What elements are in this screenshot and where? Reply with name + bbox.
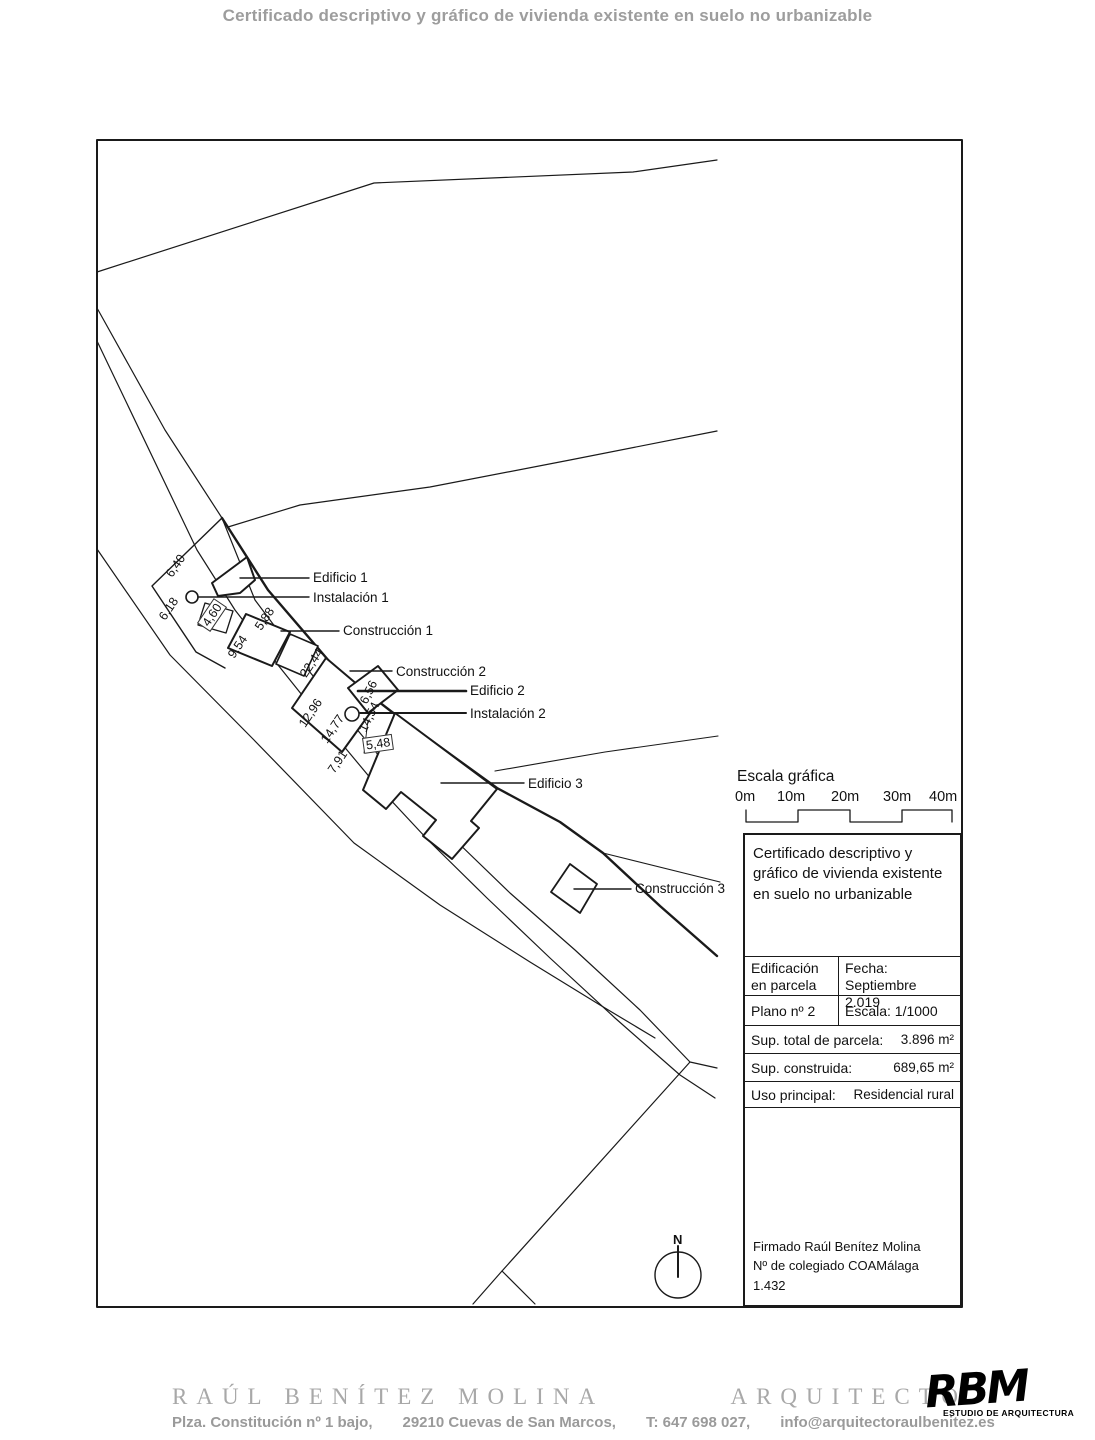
footer-address: Plza. Constitución nº 1 bajo,	[172, 1414, 373, 1431]
scale-tick-40: 40m	[929, 789, 957, 805]
north-label: N	[673, 1232, 682, 1247]
footer-phone: T: 647 698 027,	[646, 1414, 750, 1431]
field-line	[473, 1062, 690, 1304]
scale-tick-0: 0m	[735, 789, 755, 805]
title-block-title: Certificado descriptivo y gráfico de viv…	[745, 835, 960, 957]
uso-principal-row: Uso principal: Residencial rural	[745, 1082, 960, 1108]
label-instalacion-2: Instalación 2	[470, 706, 546, 721]
scale-bar-title: Escala gráfica	[737, 768, 834, 786]
label-edificio-2: Edificio 2	[470, 683, 525, 698]
plan-sheet: Certificado descriptivo y gráfico de viv…	[0, 0, 1095, 1440]
field-line	[603, 853, 720, 882]
field-line	[495, 736, 718, 771]
label-instalacion-1: Instalación 1	[313, 590, 389, 605]
sup-construida-label: Sup. construida:	[751, 1060, 852, 1076]
sup-construida-row: Sup. construida: 689,65 m²	[745, 1054, 960, 1082]
signature-block: Firmado Raúl Benítez Molina Nº de colegi…	[745, 1237, 960, 1306]
edificacion-en-parcela-cell: Edificación en parcela	[745, 957, 839, 995]
scale-tick-30: 30m	[883, 789, 911, 805]
label-construccion-1: Construcción 1	[343, 623, 433, 638]
title-block-row-2: Plano nº 2 Escala: 1/1000	[745, 996, 960, 1026]
plano-cell: Plano nº 2	[745, 996, 839, 1025]
label-construccion-2: Construcción 2	[396, 664, 486, 679]
architect-name-line: RAÚL BENÍTEZ MOLINA ARQUITECTO	[172, 1384, 967, 1410]
road-edge	[97, 341, 715, 1098]
signature-name: Firmado Raúl Benítez Molina	[753, 1237, 952, 1257]
fecha-label: Fecha:	[845, 960, 954, 977]
sup-total-value: 3.896 m²	[901, 1032, 954, 1047]
signature-number: Nº de colegiado COAMálaga 1.432	[753, 1256, 952, 1295]
road-edge	[97, 308, 717, 1068]
uso-principal-value: Residencial rural	[853, 1087, 954, 1102]
label-edificio-3: Edificio 3	[528, 776, 583, 791]
footer-city: 29210 Cuevas de San Marcos,	[403, 1414, 616, 1431]
boundary-line	[228, 431, 717, 527]
scale-tick-20: 20m	[831, 789, 859, 805]
field-line	[502, 1271, 535, 1304]
sup-construida-value: 689,65 m²	[893, 1060, 954, 1075]
rbm-logo: RBM ESTUDIO DE ARQUITECTURA	[925, 1368, 1074, 1418]
scale-tick-10: 10m	[777, 789, 805, 805]
label-edificio-1: Edificio 1	[313, 570, 368, 585]
uso-principal-label: Uso principal:	[751, 1087, 836, 1103]
scale-bar	[746, 810, 952, 822]
title-block: Certificado descriptivo y gráfico de viv…	[743, 833, 962, 1307]
boundary-line	[97, 160, 717, 272]
label-construccion-3: Construcción 3	[635, 881, 725, 896]
instalacion-2-symbol	[345, 707, 359, 721]
edificio-1-outline	[212, 557, 255, 596]
fecha-cell: Fecha: Septiembre 2.019	[839, 957, 960, 995]
escala-cell: Escala: 1/1000	[839, 1003, 960, 1019]
sup-total-row: Sup. total de parcela: 3.896 m²	[745, 1026, 960, 1054]
sup-total-label: Sup. total de parcela:	[751, 1032, 883, 1048]
title-block-row-1: Edificación en parcela Fecha: Septiembre…	[745, 957, 960, 996]
rbm-logo-text: RBM	[924, 1364, 1029, 1415]
contact-line: Plza. Constitución nº 1 bajo, 29210 Cuev…	[172, 1414, 972, 1431]
instalacion-1-symbol	[186, 591, 198, 603]
architect-name: RAÚL BENÍTEZ MOLINA	[172, 1384, 604, 1410]
